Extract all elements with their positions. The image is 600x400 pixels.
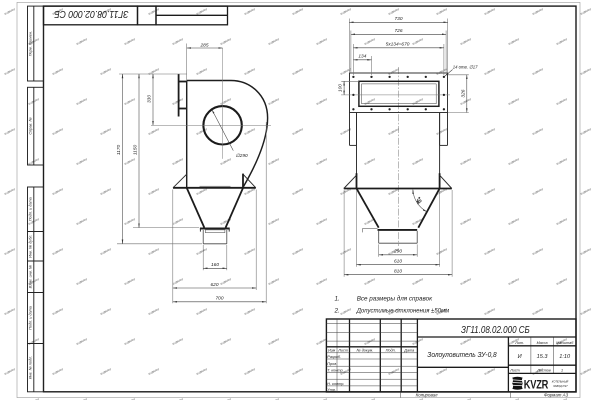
svg-text:Лит.: Лит. xyxy=(514,341,524,345)
svg-text:160: 160 xyxy=(211,262,219,268)
svg-text:Копировал: Копировал xyxy=(416,393,438,398)
svg-text:Все размеры для справок: Все размеры для справок xyxy=(357,294,433,302)
svg-text:Дата: Дата xyxy=(403,349,414,353)
svg-text:Перв. примен.: Перв. примен. xyxy=(28,31,32,56)
svg-text:700: 700 xyxy=(215,296,223,302)
svg-text:5x134=670: 5x134=670 xyxy=(386,42,410,48)
svg-text:Подп. и дата: Подп. и дата xyxy=(28,197,32,221)
svg-text:1:10: 1:10 xyxy=(559,354,571,360)
svg-text:326: 326 xyxy=(460,89,466,97)
svg-text:И: И xyxy=(518,354,522,360)
svg-text:Изм: Изм xyxy=(328,349,335,353)
svg-text:100: 100 xyxy=(338,84,344,92)
svg-text:1: 1 xyxy=(561,369,563,373)
svg-text:Лист: Лист xyxy=(337,349,348,353)
svg-text:№ докум.: № докум. xyxy=(357,349,374,353)
svg-text:Инв. № дубл.: Инв. № дубл. xyxy=(28,235,32,258)
svg-text:Листов: Листов xyxy=(536,369,551,373)
svg-text:Инв. № подл.: Инв. № подл. xyxy=(28,356,32,380)
svg-text:ЗГ11.08.02.000 СБ: ЗГ11.08.02.000 СБ xyxy=(54,8,128,20)
svg-text:Формат А3: Формат А3 xyxy=(544,393,569,398)
svg-text:KVZR: KVZR xyxy=(524,378,549,391)
svg-text:Н. контр.: Н. контр. xyxy=(327,382,344,386)
svg-text:285: 285 xyxy=(199,42,208,48)
svg-text:Пров.: Пров. xyxy=(327,362,337,366)
svg-text:15.3: 15.3 xyxy=(537,354,549,360)
svg-text:1.: 1. xyxy=(335,295,340,302)
svg-text:810: 810 xyxy=(394,269,402,275)
svg-text:Утв.: Утв. xyxy=(327,388,336,392)
svg-text:Взам. инв. №: Взам. инв. № xyxy=(28,265,32,288)
svg-text:2.: 2. xyxy=(334,307,340,314)
svg-text:14 отв. ∅17: 14 отв. ∅17 xyxy=(453,64,478,69)
svg-text:620: 620 xyxy=(210,282,218,288)
svg-text:∅290: ∅290 xyxy=(236,153,249,159)
svg-text:730: 730 xyxy=(394,16,402,22)
svg-text:1150: 1150 xyxy=(133,145,139,156)
svg-text:290: 290 xyxy=(393,249,402,255)
svg-text:1170: 1170 xyxy=(116,145,122,156)
svg-text:Разраб.: Разраб. xyxy=(327,355,341,359)
svg-text:Масса: Масса xyxy=(537,341,548,345)
svg-text:Т. контр.: Т. контр. xyxy=(327,369,343,373)
svg-text:134: 134 xyxy=(358,54,366,60)
svg-text:ЗГ11.08.02.000 СБ: ЗГ11.08.02.000 СБ xyxy=(461,324,530,335)
svg-text:Подп. и дата: Подп. и дата xyxy=(28,306,32,330)
svg-text:Справ. №: Справ. № xyxy=(28,117,32,134)
svg-text:Подп.: Подп. xyxy=(386,349,396,353)
svg-text:330: 330 xyxy=(147,95,153,103)
svg-text:Допустимые отклонения ±50мм: Допустимые отклонения ±50мм xyxy=(356,307,450,314)
svg-text:ЗАВОД РЭТ: ЗАВОД РЭТ xyxy=(553,384,568,388)
svg-text:Масштаб: Масштаб xyxy=(556,341,574,345)
svg-text:610: 610 xyxy=(394,259,402,265)
svg-text:Лист: Лист xyxy=(509,369,520,373)
svg-text:726: 726 xyxy=(394,28,402,34)
svg-text:Золоуловитель ЗУ-0,8: Золоуловитель ЗУ-0,8 xyxy=(427,352,497,359)
